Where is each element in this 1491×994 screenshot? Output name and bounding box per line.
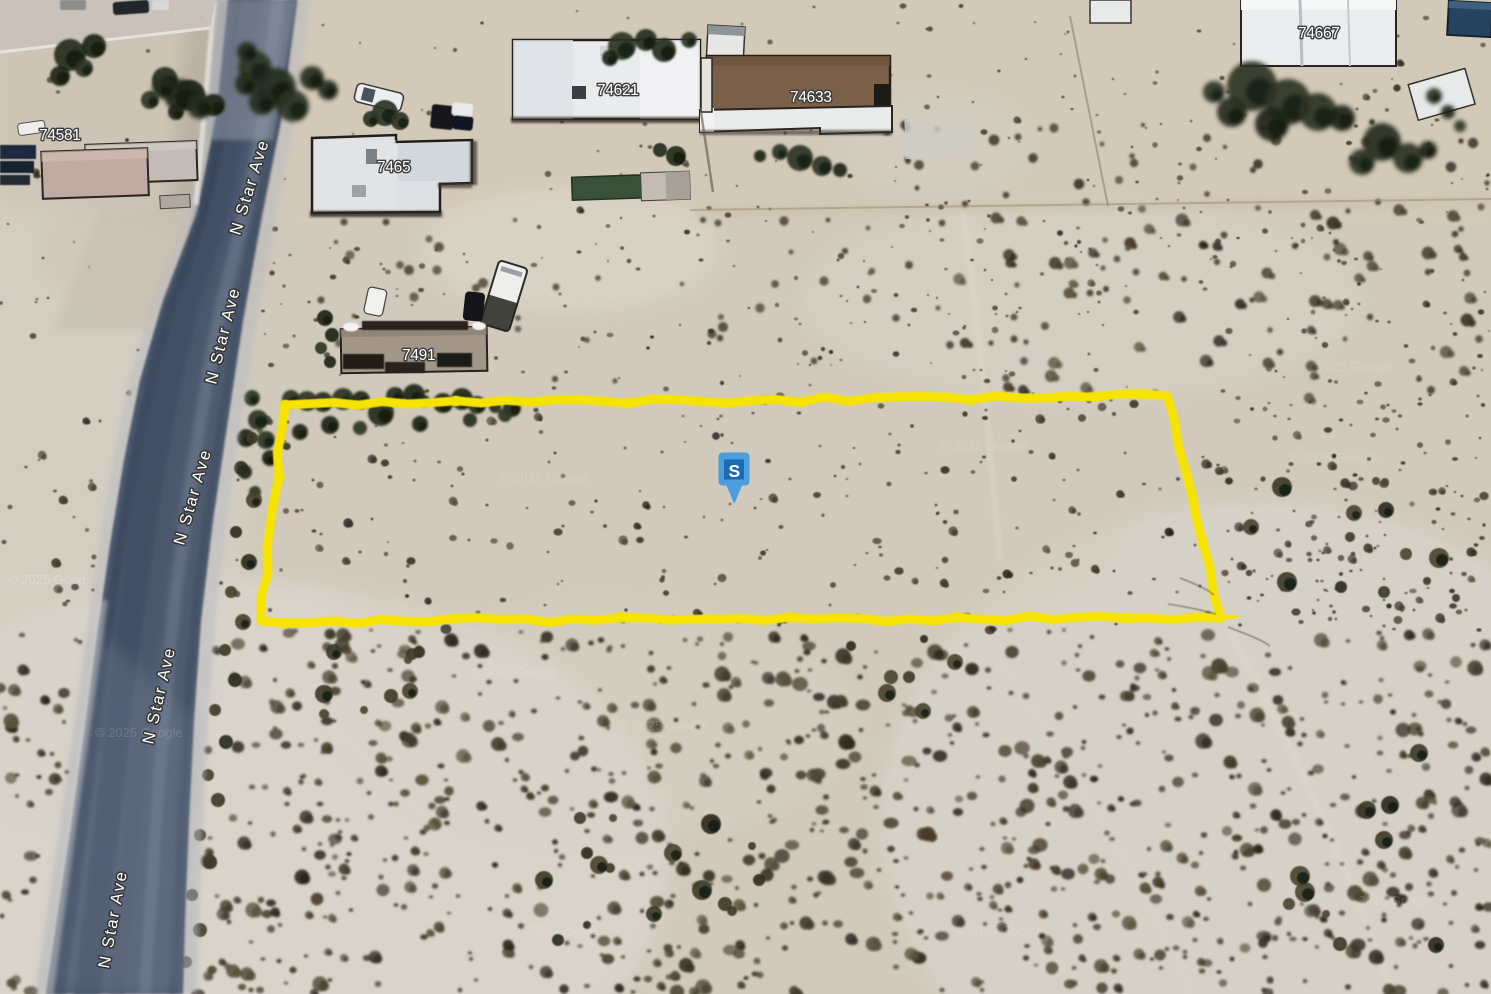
svg-text:S: S bbox=[728, 461, 740, 481]
svg-text:74667: 74667 bbox=[1298, 25, 1340, 42]
svg-text:© 2025 Goog: © 2025 Goog bbox=[8, 572, 86, 587]
svg-text:74633: 74633 bbox=[790, 89, 832, 106]
svg-text:© 2025 Google: © 2025 Google bbox=[1290, 450, 1378, 465]
svg-text:74581: 74581 bbox=[39, 127, 81, 144]
svg-text:74621: 74621 bbox=[597, 82, 639, 99]
svg-text:7465: 7465 bbox=[377, 159, 410, 176]
svg-text:© 2025 Google: © 2025 Google bbox=[1305, 359, 1393, 374]
svg-text:© 2025 Google: © 2025 Google bbox=[95, 725, 183, 740]
svg-text:© 2025 Google: © 2025 Google bbox=[510, 923, 598, 938]
svg-text:© 2025 Google: © 2025 Google bbox=[940, 438, 1028, 453]
svg-text:© 2025 Google: © 2025 Google bbox=[1345, 893, 1433, 908]
svg-text:© 2025 Google: © 2025 Google bbox=[500, 470, 588, 485]
svg-text:© 2025 Google: © 2025 Google bbox=[955, 923, 1043, 938]
svg-text:© 2025 Google: © 2025 Google bbox=[470, 664, 558, 679]
svg-text:7491: 7491 bbox=[402, 347, 435, 364]
svg-text:© 2025 Google: © 2025 Google bbox=[620, 718, 708, 733]
